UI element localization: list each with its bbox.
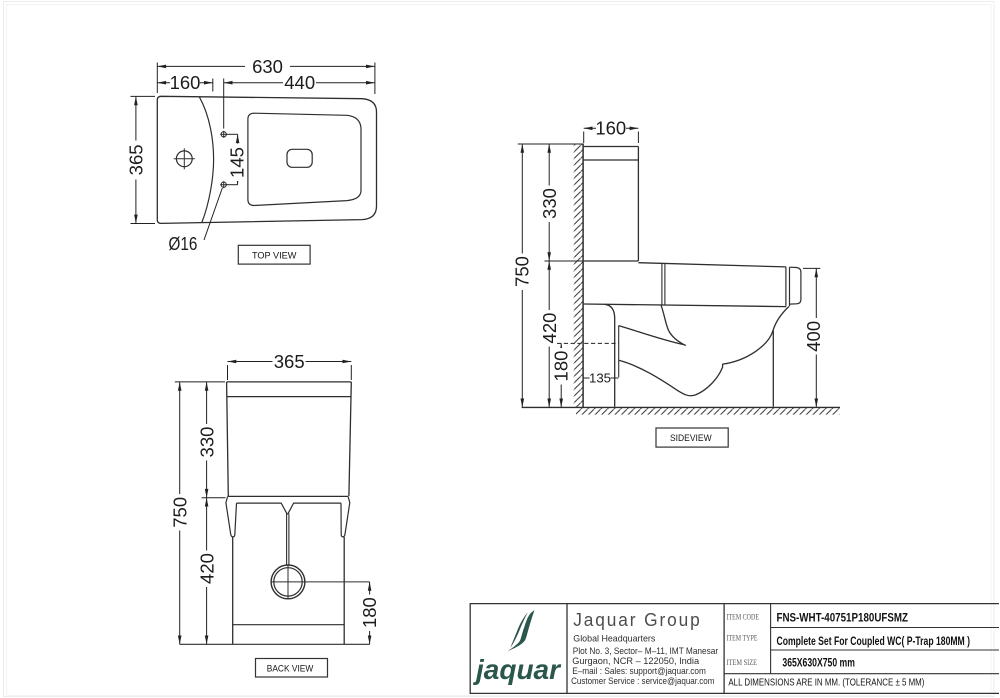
svg-text:Complete Set For Coupled WC( P: Complete Set For Coupled WC( P-Trap 180M… — [777, 636, 971, 648]
svg-text:330: 330 — [539, 188, 560, 219]
svg-text:Gurgaon, NCR – 122050, India: Gurgaon, NCR – 122050, India — [572, 656, 700, 666]
svg-text:jaquar: jaquar — [473, 654, 561, 685]
svg-text:160: 160 — [595, 118, 626, 139]
svg-text:365X630X750 mm: 365X630X750 mm — [782, 658, 855, 670]
svg-text:FNS-WHT-40751P180UFSMZ: FNS-WHT-40751P180UFSMZ — [777, 613, 909, 625]
svg-text:420: 420 — [196, 553, 217, 584]
svg-text:180: 180 — [551, 351, 572, 382]
svg-text:145: 145 — [226, 147, 247, 178]
svg-text:750: 750 — [169, 497, 190, 528]
svg-text:750: 750 — [512, 256, 533, 287]
svg-text:SIDEVIEW: SIDEVIEW — [670, 433, 712, 444]
svg-text:180: 180 — [359, 597, 380, 628]
svg-text:E–mail : Sales: support@jaquar: E–mail : Sales: support@jaquar.com — [572, 666, 706, 676]
svg-text:Jaquar Group: Jaquar Group — [573, 610, 702, 630]
svg-text:630: 630 — [252, 56, 283, 77]
svg-text:330: 330 — [196, 427, 217, 458]
svg-text:365: 365 — [125, 144, 146, 175]
svg-text:BACK VIEW: BACK VIEW — [267, 663, 314, 674]
svg-text:Plot No. 3, Sector– M–11, IMT: Plot No. 3, Sector– M–11, IMT Manesar — [573, 646, 718, 656]
svg-text:135: 135 — [589, 371, 611, 386]
svg-text:ITEM TYPE: ITEM TYPE — [727, 633, 758, 643]
svg-text:420: 420 — [539, 313, 560, 344]
svg-text:ITEM CODE: ITEM CODE — [727, 612, 760, 622]
svg-text:440: 440 — [284, 72, 315, 93]
svg-text:Customer Service : service@jaq: Customer Service : service@jaquar.com — [571, 676, 715, 686]
svg-text:ITEM SIZE: ITEM SIZE — [727, 657, 758, 667]
svg-text:ALL DIMENSIONS ARE IN MM. (TOL: ALL DIMENSIONS ARE IN MM. (TOLERANCE ± 5… — [728, 676, 924, 688]
svg-text:160: 160 — [170, 72, 201, 93]
svg-text:TOP VIEW: TOP VIEW — [252, 250, 297, 261]
svg-text:Global Headquarters: Global Headquarters — [573, 633, 655, 643]
svg-text:Ø16: Ø16 — [169, 233, 198, 254]
svg-text:365: 365 — [274, 351, 305, 372]
svg-text:400: 400 — [803, 321, 824, 352]
